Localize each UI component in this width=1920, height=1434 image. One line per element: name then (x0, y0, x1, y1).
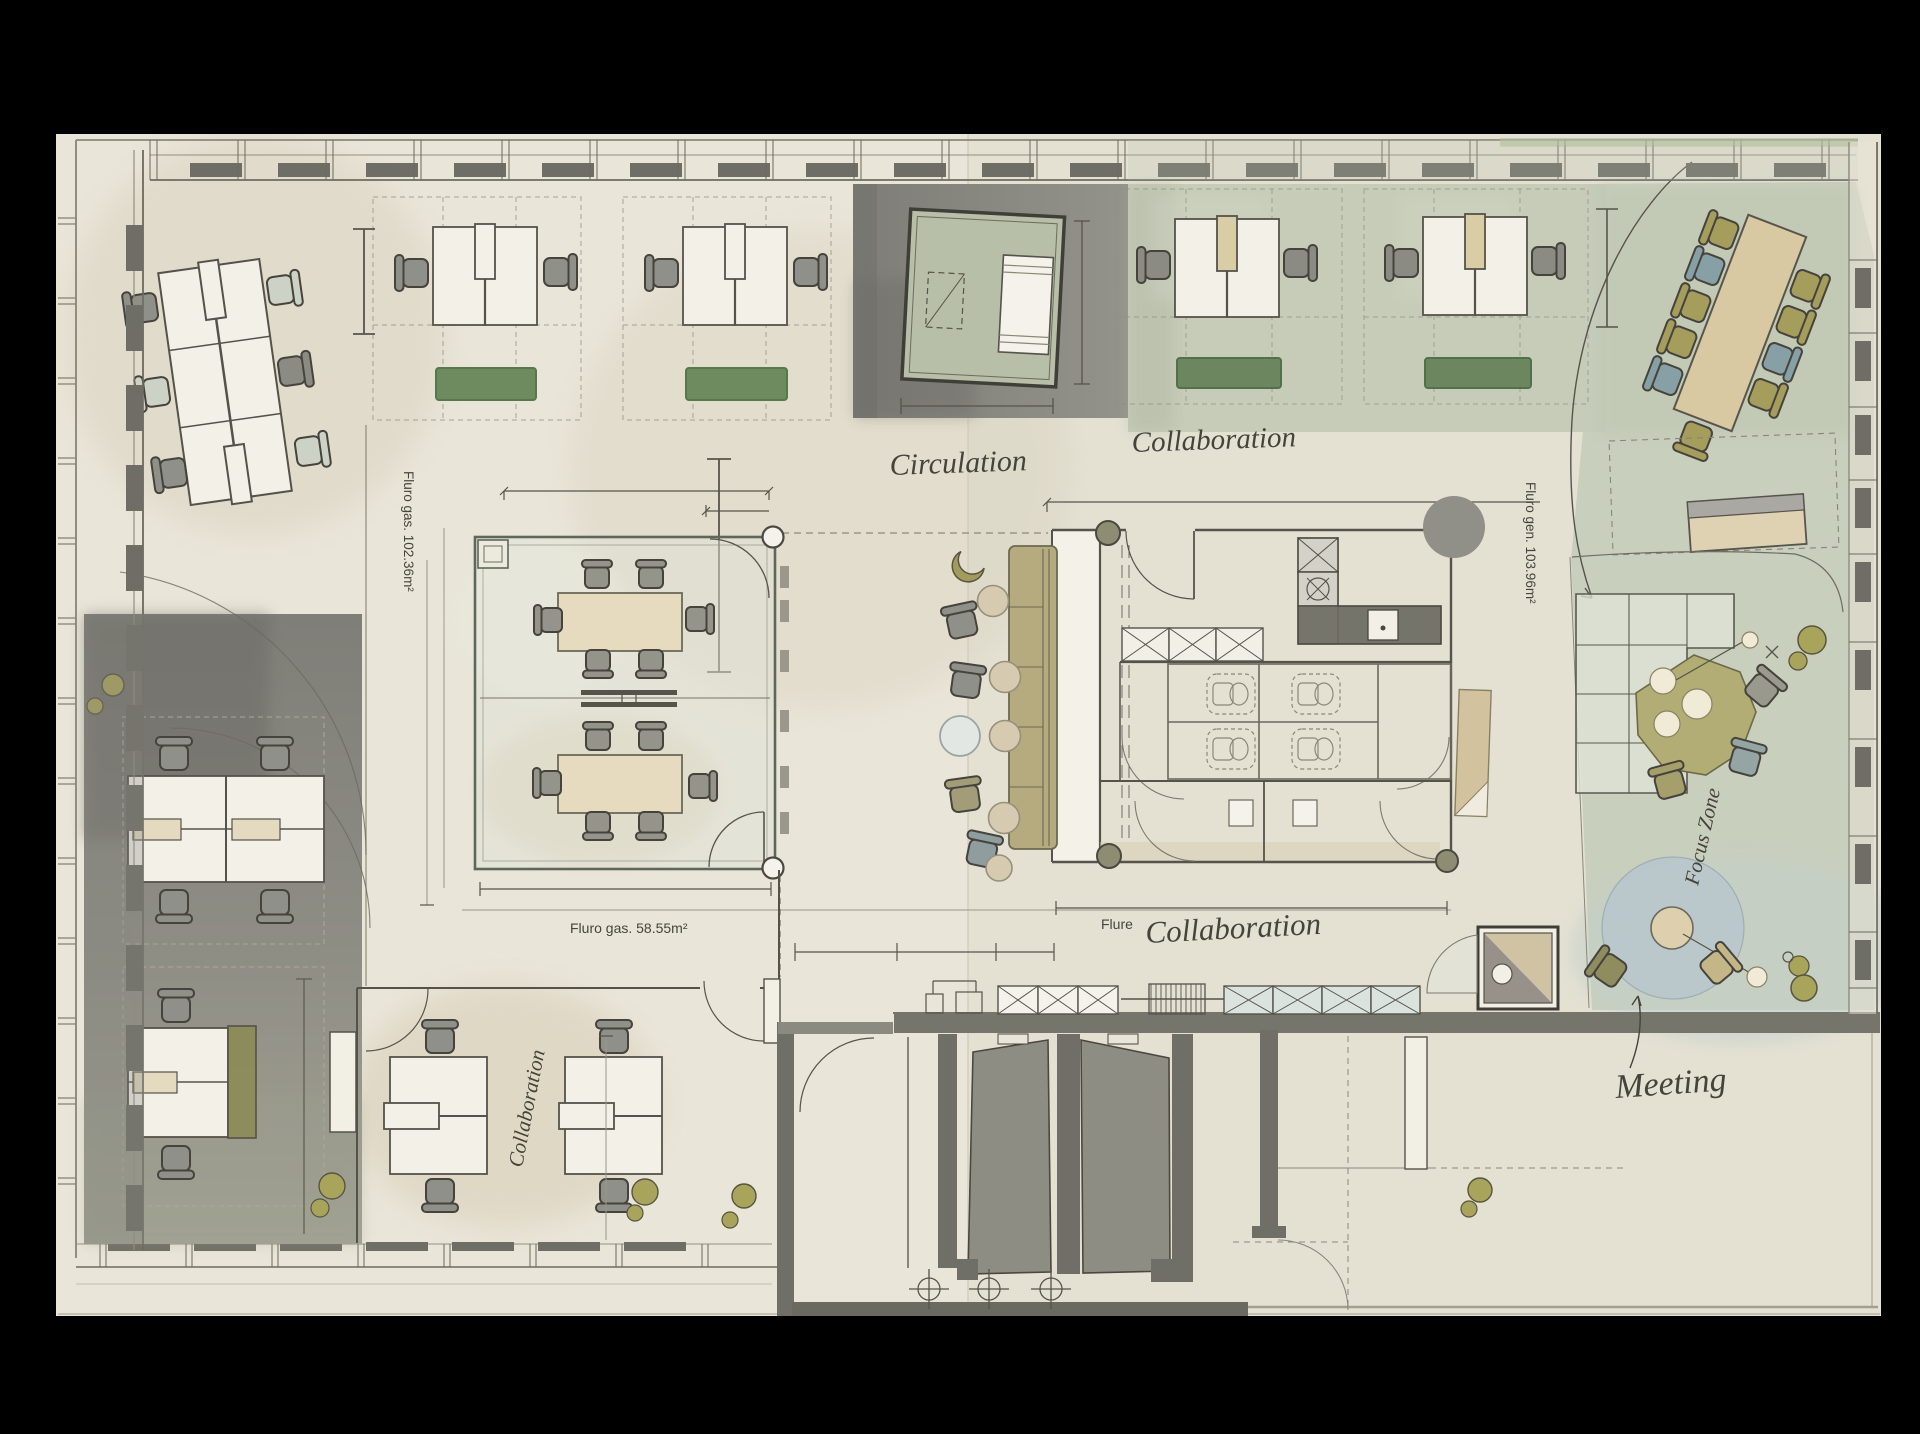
svg-text:Flure: Flure (1101, 916, 1133, 932)
svg-text:Circulation: Circulation (889, 444, 1027, 482)
svg-text:Fluro gen. 103.96m²: Fluro gen. 103.96m² (1523, 482, 1538, 604)
svg-text:Fluro gas. 102.36m²: Fluro gas. 102.36m² (401, 471, 416, 592)
svg-text:Fluro gas. 58.55m²: Fluro gas. 58.55m² (570, 920, 688, 936)
svg-text:Collaboration: Collaboration (1131, 421, 1296, 459)
